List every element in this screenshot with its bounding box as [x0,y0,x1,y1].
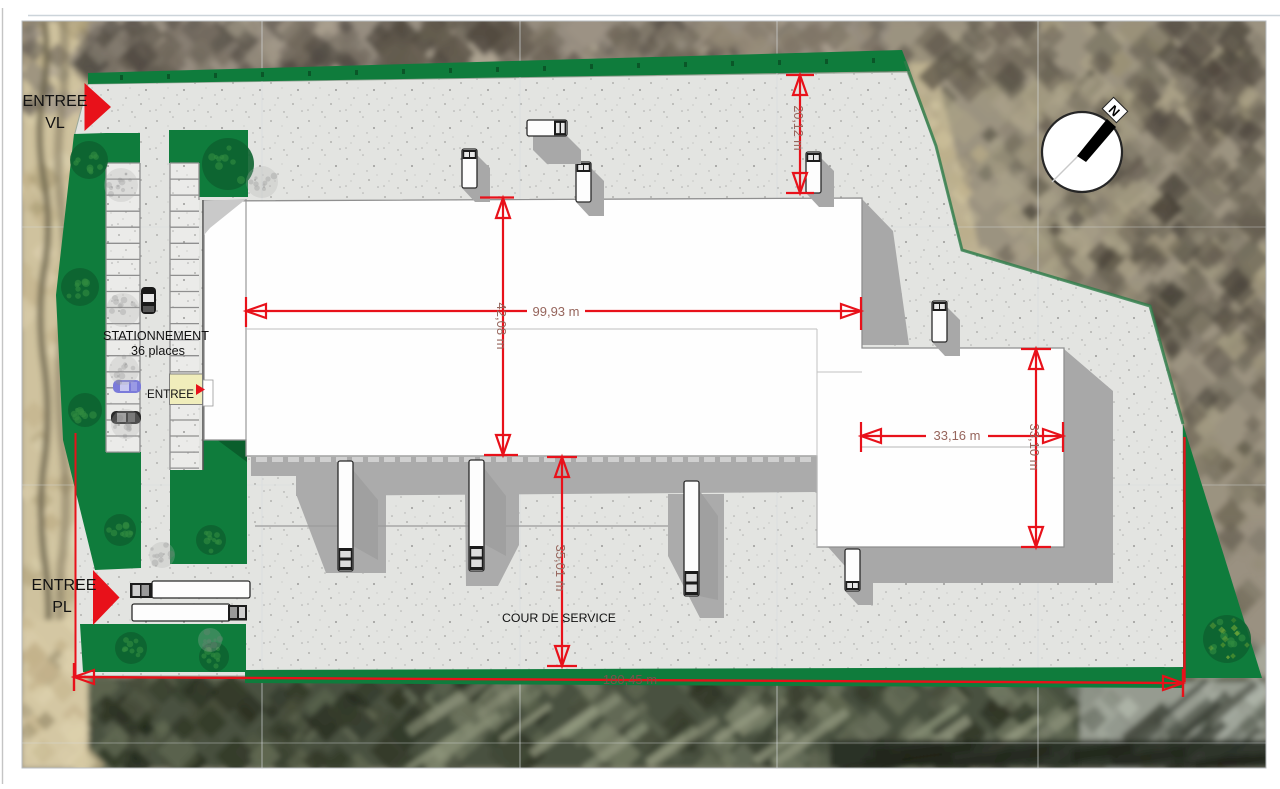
svg-text:PL: PL [52,599,72,616]
svg-text:99,93 m: 99,93 m [533,304,580,319]
svg-text:20,12 m: 20,12 m [791,105,805,150]
svg-text:ENTREE: ENTREE [147,388,194,401]
svg-text:COUR DE SERVICE: COUR DE SERVICE [502,611,616,625]
svg-text:42,08 m: 42,08 m [494,303,509,350]
svg-text:36 places: 36 places [131,344,185,358]
svg-text:180,45 m: 180,45 m [603,672,657,687]
svg-text:VL: VL [45,115,65,132]
svg-text:33,16 m: 33,16 m [934,428,981,443]
svg-text:ENTREE: ENTREE [32,577,97,594]
svg-text:35,01 m: 35,01 m [553,545,568,592]
svg-text:STATIONNEMENT: STATIONNEMENT [103,329,209,343]
svg-text:33,10 m: 33,10 m [1027,424,1042,471]
svg-text:ENTREE: ENTREE [23,93,88,110]
